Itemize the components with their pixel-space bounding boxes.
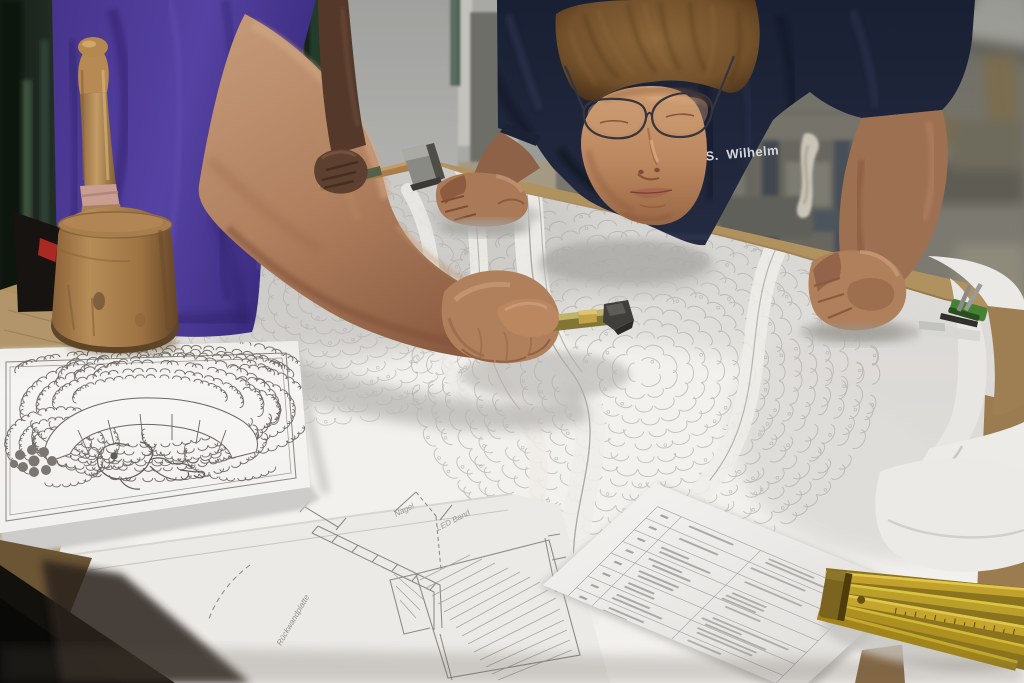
svg-text:4038: 4038 (146, 354, 160, 360)
